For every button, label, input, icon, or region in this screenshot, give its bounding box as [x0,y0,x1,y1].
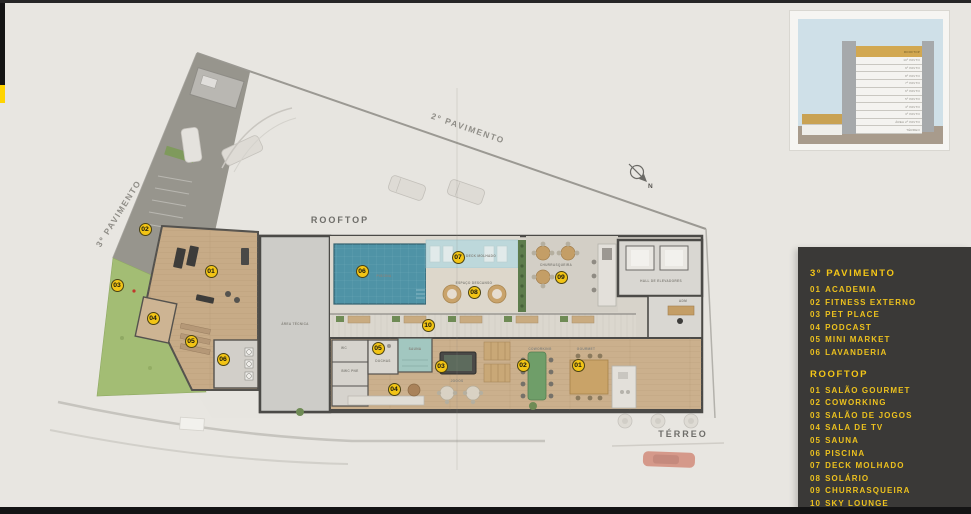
section-inset-card: ROOFTOP 10º PAVTO9º PAVTO8º PAVTO7º PAVT… [789,10,950,151]
section-tower-left [842,41,856,134]
section-rooftop-band: ROOFTOP [856,46,922,57]
terreo-ghosts [618,414,698,468]
section-tower-right [922,41,934,132]
planter-strip [518,240,526,312]
lower-wing: WC BWC PNE DUCHAS SAUNA [296,338,702,416]
section-floor-row: ÁREA 2º PAVTO [856,119,922,127]
legend-item: 03PET PLACE [810,309,965,322]
duchas-room: DUCHAS [368,340,398,374]
deck-molhado-label: DECK MOLHADO [466,254,496,258]
section-rooftop-label: ROOFTOP [904,50,922,54]
legend-section-title: 3º PAVIMENTO [810,268,965,279]
espaco-descanso-label: ESPAÇO DESCANSO [456,281,493,285]
section-floor-row: 10º PAVTO [856,57,922,65]
legend-item: 02COWORKING [810,397,965,410]
legend-item: 01ACADEMIA [810,284,965,297]
legend-item: 05MINI MARKET [810,334,965,347]
left-border-bar [0,3,5,85]
north-label: N [648,183,653,190]
adm-label: ADM [679,299,687,303]
piscina-label: PISCINA [376,274,391,278]
bwc-pne-label: BWC PNE [341,369,358,373]
section-floor-stack: 10º PAVTO9º PAVTO8º PAVTO7º PAVTO6º PAVT… [856,57,922,134]
terreo-label: TÉRREO [658,429,708,439]
section-floor-row: 9º PAVTO [856,65,922,73]
legend-item: 05SAUNA [810,435,965,448]
lavanderia-room [214,340,258,388]
section-floor-row: 8º PAVTO [856,72,922,80]
wet-deck: DECK MOLHADO [426,240,518,268]
top-border-bar [0,0,971,3]
elevator-hall: HALL DE ELEVADORES [618,240,702,296]
legend-item: 06LAVANDERIA [810,347,965,360]
legend-item: 07DECK MOLHADO [810,460,965,473]
legend-item: 02FITNESS EXTERNO [810,297,965,310]
area-tecnica-room: ÁREA TÉCNICA [260,236,330,412]
legend-item: 09CHURRASQUEIRA [810,485,965,498]
legend-item: 04PODCAST [810,322,965,335]
legend-panel: 3º PAVIMENTO01ACADEMIA02FITNESS EXTERNO0… [798,247,971,511]
building-section-diagram: ROOFTOP 10º PAVTO9º PAVTO8º PAVTO7º PAVT… [798,19,943,144]
area-tecnica-label: ÁREA TÉCNICA [281,321,309,326]
section-floor-row: 5º PAVTO [856,96,922,104]
legend-item: 08SOLÁRIO [810,473,965,486]
sauna-room: SAUNA [398,338,432,372]
legend-item: 03SALÃO DE JOGOS [810,410,965,423]
adm-room: ADM [648,296,702,340]
coworking-label: COWORKING [528,347,551,351]
section-floor-row: 7º PAVTO [856,80,922,88]
plant [529,402,537,410]
north-arrow: N [629,164,653,190]
section-floor-row: 6º PAVTO [856,88,922,96]
gourmet-label: GOURMET [577,347,595,351]
yellow-accent-mark [0,85,5,103]
section-annex-base [802,124,842,135]
legend-item: 04SALA DE TV [810,422,965,435]
duchas-label: DUCHAS [375,359,390,363]
legend-item: 01SALÃO GOURMET [810,385,965,398]
rooftop-slab: ÁREA TÉCNICA PISCINA DECK MOLHADO [260,236,702,416]
rooftop-label: ROOFTOP [311,215,369,225]
section-floor-row: TÉRREO [856,126,922,134]
podcast-room [135,297,177,343]
section-annex [802,114,842,124]
ghost-red-car [643,451,695,468]
plant [296,408,304,416]
hall-elevadores-label: HALL DE ELEVADORES [640,279,682,283]
solario-area: ESPAÇO DESCANSO [426,268,518,312]
churrasqueira-area: CHURRASQUEIRA [526,236,618,312]
churrasqueira-label: CHURRASQUEIRA [540,263,573,267]
brochure-page: ÁREA TÉCNICA PISCINA DECK MOLHADO [0,0,971,514]
wc-label: WC [341,346,347,350]
bottom-border-bar [0,507,971,514]
sauna-label: SAUNA [409,347,422,351]
section-floor-row: 3º PAVTO [856,111,922,119]
sky-lounge-deck [330,314,636,338]
section-floor-row: 4º PAVTO [856,103,922,111]
legend-section-title: ROOFTOP [810,369,965,380]
legend-item: 06PISCINA [810,448,965,461]
